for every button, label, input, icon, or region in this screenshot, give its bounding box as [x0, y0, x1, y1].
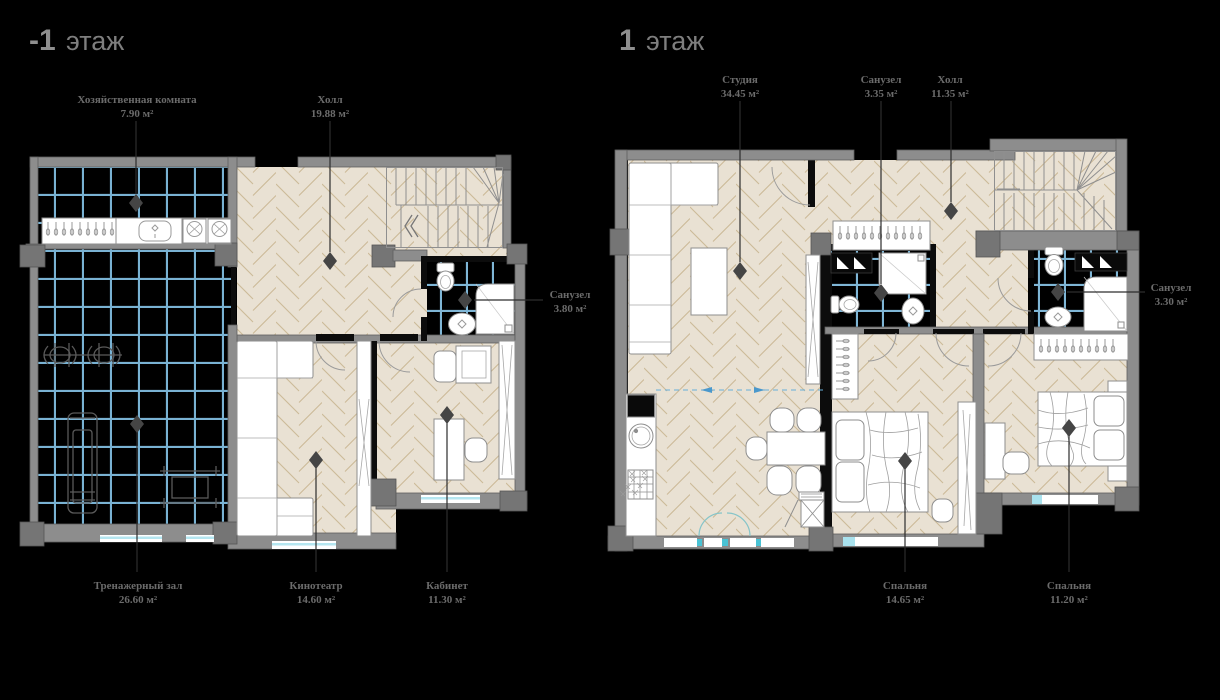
- svg-text:-1 этаж: -1 этаж: [29, 24, 124, 57]
- svg-text:7.90 м²: 7.90 м²: [121, 108, 154, 120]
- svg-text:Спальня: Спальня: [1047, 580, 1091, 592]
- svg-text:Хозяйственная комната: Хозяйственная комната: [77, 94, 197, 106]
- svg-text:Тренажерный зал: Тренажерный зал: [94, 580, 183, 592]
- svg-text:3.30 м²: 3.30 м²: [1155, 296, 1188, 308]
- svg-text:Кинотеатр: Кинотеатр: [289, 580, 342, 592]
- svg-text:11.35 м²: 11.35 м²: [931, 88, 969, 100]
- svg-text:Санузел: Санузел: [1151, 282, 1192, 294]
- svg-text:Кабинет: Кабинет: [426, 580, 468, 592]
- svg-text:Холл: Холл: [317, 94, 342, 106]
- svg-text:Санузел: Санузел: [550, 289, 591, 301]
- svg-text:Студия: Студия: [722, 74, 758, 86]
- svg-text:3.80 м²: 3.80 м²: [554, 303, 587, 315]
- svg-text:3.35 м²: 3.35 м²: [865, 88, 898, 100]
- svg-text:Спальня: Спальня: [883, 580, 927, 592]
- svg-text:11.20 м²: 11.20 м²: [1050, 594, 1088, 606]
- svg-text:19.88 м²: 19.88 м²: [311, 108, 350, 120]
- svg-text:11.30 м²: 11.30 м²: [428, 594, 466, 606]
- svg-text:Холл: Холл: [937, 74, 962, 86]
- svg-text:1 этаж: 1 этаж: [619, 24, 704, 57]
- svg-text:14.60 м²: 14.60 м²: [297, 594, 336, 606]
- svg-text:Санузел: Санузел: [861, 74, 902, 86]
- svg-text:14.65 м²: 14.65 м²: [886, 594, 925, 606]
- svg-text:34.45 м²: 34.45 м²: [721, 88, 760, 100]
- svg-text:26.60 м²: 26.60 м²: [119, 594, 158, 606]
